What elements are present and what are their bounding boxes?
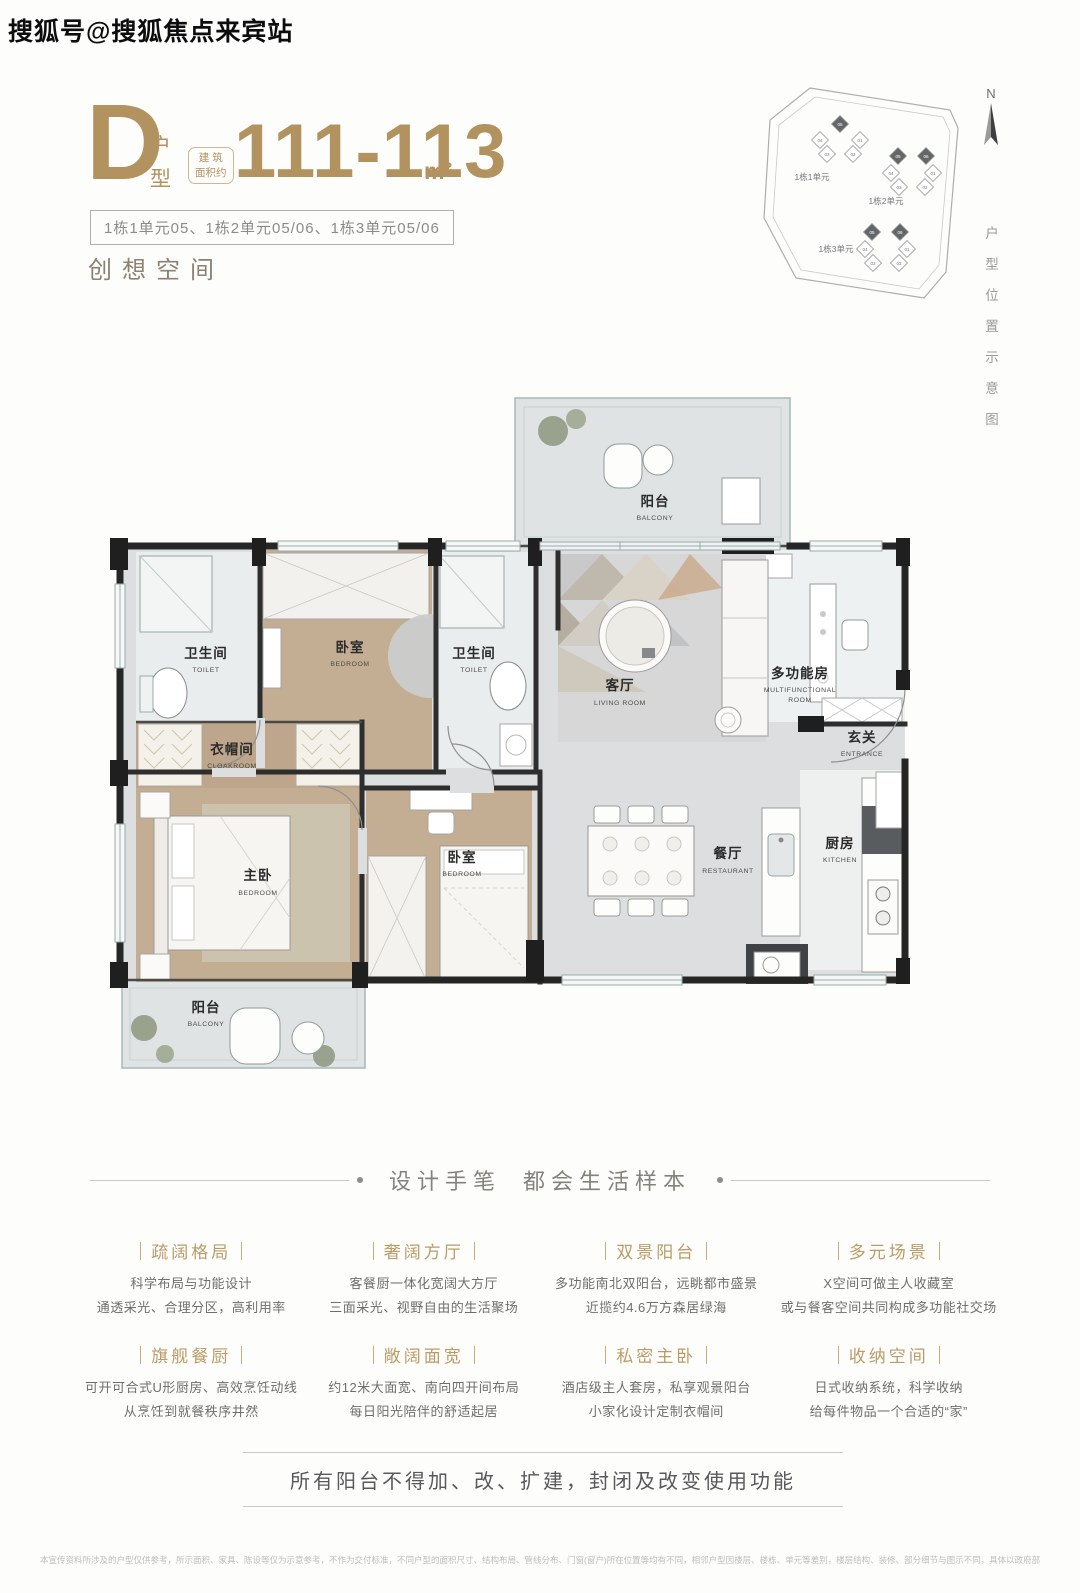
feature-line: 科学布局与功能设计	[75, 1272, 308, 1296]
title-bar	[838, 1346, 839, 1364]
watermark: 搜狐号@搜狐焦点来宾站	[8, 12, 293, 48]
feature-grid: 疏阔格局 科学布局与功能设计 通透采光、合理分区，高利用率 奢阔方厅 客餐厨一体…	[75, 1238, 1005, 1424]
siteplan-unit-number: 01	[930, 171, 936, 176]
floorplan: 阳台 BALCONY 卫生间 TOILET 卧室 BEDROOM 卫生间 TOI…	[110, 388, 910, 1085]
title-bar	[706, 1242, 707, 1260]
siteplan-caption-char: 置	[983, 315, 1001, 335]
feature-title: 旗舰餐厨	[151, 1342, 231, 1367]
room-label-en: ENTRANCE	[841, 751, 883, 758]
feature-line: 约12米大面宽、南向四开间布局	[308, 1376, 541, 1400]
feature-title: 多元场景	[849, 1238, 929, 1263]
feature-line: 酒店级主人套房，私享观景阳台	[540, 1376, 773, 1400]
feature-line: 三面采光、视野自由的生活聚场	[308, 1296, 541, 1320]
feature-line: 日式收纳系统，科学收纳	[773, 1376, 1006, 1400]
basin-round	[643, 445, 673, 475]
siteplan-unit-number: 02	[922, 185, 928, 190]
siteplan-unit-number: 06	[897, 230, 903, 235]
room-label-balcony-top: 阳台	[641, 493, 670, 509]
plant	[131, 1015, 157, 1041]
units-tag: 1栋1单元05、1栋2单元05/06、1栋3单元05/06	[90, 210, 454, 245]
siteplan-caption-char: 示	[983, 346, 1001, 366]
room-label-en: KITCHEN	[823, 857, 857, 864]
divider-line	[90, 1180, 349, 1181]
feature-title: 私密主卧	[616, 1342, 696, 1367]
room-label-en: CLOAKROOM	[207, 763, 257, 770]
siteplan-unit-number: 06	[923, 154, 929, 159]
feature-title: 敞阔面宽	[384, 1342, 464, 1367]
title-bar	[939, 1242, 940, 1260]
room-balcony-top	[515, 398, 790, 546]
title-bar	[140, 1346, 141, 1364]
feature-title: 双景阳台	[616, 1238, 696, 1263]
title-bar	[474, 1242, 475, 1260]
plant	[538, 416, 568, 446]
feature-master: 私密主卧 酒店级主人套房，私享观景阳台 小家化设计定制衣帽间	[540, 1342, 773, 1424]
title-bar	[241, 1242, 242, 1260]
unit-type-char: 户	[150, 130, 173, 163]
title-bar	[241, 1346, 242, 1364]
room-dining	[588, 806, 694, 916]
title-bar	[373, 1242, 374, 1260]
feature-title: 奢阔方厅	[384, 1238, 464, 1263]
room-bedroom-bottom	[366, 788, 532, 982]
shoe-cabinet	[876, 772, 902, 828]
balcony-notice: 所有阳台不得加、改、扩建，封闭及改变使用功能	[243, 1452, 843, 1507]
disclaimer: 本宣传资料所涉及的户型仅供参考，所示面积、家具、陈设等仅为示意参考，不作为交付标…	[40, 1554, 1040, 1566]
room-label-bedroom-bottom: 卧室	[448, 849, 477, 865]
basin	[230, 1008, 280, 1064]
siteplan-unit-number: 01	[857, 138, 863, 143]
room-label-toilet-right: 卫生间	[452, 645, 496, 661]
room-label-en: ROOM	[788, 697, 812, 704]
room-label-en: TOILET	[460, 667, 487, 674]
siteplan-caption-char: 图	[983, 408, 1001, 428]
feature-line: 每日阳光陪伴的舒适起居	[308, 1400, 541, 1424]
siteplan-unit-number: 03	[870, 261, 876, 266]
divider-dot	[357, 1177, 363, 1183]
feature-line: 客餐厨一体化宽阔大方厅	[308, 1272, 541, 1296]
title-bar	[706, 1346, 707, 1364]
siteplan-unit-number: 04	[817, 138, 823, 143]
siteplan-unit-number: 04	[862, 247, 868, 252]
room-label-en: MULTIFUNCTIONAL	[764, 687, 836, 694]
compass: N	[976, 86, 1006, 150]
room-master-bedroom	[136, 788, 362, 982]
siteplan-unit-number: 03	[824, 152, 830, 157]
feature-hall: 奢阔方厅 客餐厨一体化宽阔大方厅 三面采光、视野自由的生活聚场	[308, 1238, 541, 1320]
siteplan-unit-number: 05	[895, 154, 901, 159]
feature-line: 可开可合式U形厨房、高效烹饪动线	[75, 1376, 308, 1400]
basin	[604, 444, 642, 488]
room-label-en: RESTAURANT	[702, 868, 754, 875]
siteplan-caption-char: 意	[983, 377, 1001, 397]
section-title-row: 设计手笔都会生活样本	[90, 1164, 990, 1196]
feature-line: 多功能南北双阳台，远眺都市盛景	[540, 1272, 773, 1296]
siteplan-unit-number: 04	[888, 171, 894, 176]
compass-north-label: N	[976, 86, 1006, 101]
siteplan-diagram: 05040103021栋1单元0506040103021栋2单元05060401…	[752, 76, 964, 311]
title-bar	[939, 1346, 940, 1364]
title-bar	[373, 1346, 374, 1364]
feature-line: 近揽约4.6万方森居绿海	[540, 1296, 773, 1320]
title-bar	[605, 1346, 606, 1364]
feature-title: 疏阔格局	[151, 1238, 231, 1263]
section-title: 设计手笔都会生活样本	[389, 1164, 691, 1196]
room-label-en: BALCONY	[637, 515, 674, 522]
feature-line: 或与餐客空间共同构成多功能社交场	[773, 1296, 1006, 1320]
feature-balcony: 双景阳台 多功能南北双阳台，远眺都市盛景 近揽约4.6万方森居绿海	[540, 1238, 773, 1320]
room-living	[558, 554, 768, 742]
room-label-en: LIVING ROOM	[594, 700, 646, 707]
area-note-line: 面积约	[195, 166, 227, 181]
title-bar	[605, 1242, 606, 1260]
feature-line: 通透采光、合理分区，高利用率	[75, 1296, 308, 1320]
divider-line	[731, 1180, 990, 1181]
siteplan-caption-char: 位	[983, 284, 1001, 304]
room-label-living: 客厅	[605, 677, 635, 693]
area-unit: m²	[424, 158, 452, 185]
siteplan-caption-vertical: 户型位置示意图	[983, 222, 1001, 439]
room-label-dining: 餐厅	[713, 845, 743, 861]
siteplan-clusters: 05040103021栋1单元0506040103021栋2单元05060401…	[795, 116, 942, 272]
room-label-en: TOILET	[192, 667, 219, 674]
section-title-part1: 设计手笔	[389, 1169, 501, 1194]
flyer-page: 搜狐号@搜狐焦点来宾站 D 户 型 建 筑 面积约 111-113 m² 1栋1…	[0, 0, 1080, 1593]
feature-line: 从烹饪到就餐秩序井然	[75, 1400, 308, 1424]
feature-scene: 多元场景 X空间可做主人收藏室 或与餐客空间共同构成多功能社交场	[773, 1238, 1006, 1320]
feature-kitchen: 旗舰餐厨 可开可合式U形厨房、高效烹饪动线 从烹饪到就餐秩序井然	[75, 1342, 308, 1424]
area-note: 建 筑 面积约	[188, 147, 234, 184]
compass-arrow-icon	[982, 101, 1000, 147]
feature-title: 收纳空间	[849, 1342, 929, 1367]
feature-width: 敞阔面宽 约12米大面宽、南向四开间布局 每日阳光陪伴的舒适起居	[308, 1342, 541, 1424]
room-label-entrance: 玄关	[848, 729, 877, 745]
room-label-kitchen: 厨房	[826, 835, 855, 851]
siteplan-caption-char: 户	[983, 222, 1001, 242]
siteplan-cluster-label: 1栋2单元	[869, 196, 904, 206]
siteplan-unit-number: 01	[904, 247, 910, 252]
ac-unit	[722, 478, 760, 524]
feature-layout: 疏阔格局 科学布局与功能设计 通透采光、合理分区，高利用率	[75, 1238, 308, 1320]
room-label-en: BEDROOM	[442, 871, 481, 878]
unit-type-char: 型	[150, 163, 173, 196]
divider-dot	[717, 1177, 723, 1183]
feature-line: 小家化设计定制衣帽间	[540, 1400, 773, 1424]
plant	[156, 1045, 174, 1063]
area-note-line: 建 筑	[195, 151, 227, 166]
basin-round	[292, 1022, 324, 1054]
siteplan-unit-number: 05	[837, 122, 843, 127]
slogan: 创想空间	[88, 250, 224, 285]
siteplan-unit-number: 05	[869, 230, 875, 235]
feature-storage: 收纳空间 日式收纳系统，科学收纳 给每件物品一个合适的“家”	[773, 1342, 1006, 1424]
unit-type-label: 户 型	[150, 130, 173, 196]
feature-line: X空间可做主人收藏室	[773, 1272, 1006, 1296]
room-label-balcony-bottom: 阳台	[192, 999, 221, 1015]
siteplan-cluster-label: 1栋3单元	[819, 244, 854, 254]
room-label-cloakroom: 衣帽间	[210, 741, 254, 757]
title-bar	[474, 1346, 475, 1364]
siteplan-caption-char: 型	[983, 253, 1001, 273]
room-label-en: BALCONY	[188, 1021, 225, 1028]
room-label-en: BEDROOM	[330, 661, 369, 668]
title-bar	[140, 1242, 141, 1260]
room-balcony-bottom	[122, 980, 365, 1068]
room-label-en: BEDROOM	[238, 890, 277, 897]
siteplan-boundary-outer	[764, 88, 958, 298]
feature-line: 给每件物品一个合适的“家”	[773, 1400, 1006, 1424]
siteplan-unit-number: 02	[850, 152, 856, 157]
area-value: 111-113	[234, 114, 507, 190]
siteplan-unit-number: 02	[896, 261, 902, 266]
siteplan-cluster-label: 1栋1单元	[795, 172, 830, 182]
siteplan-unit-number: 03	[896, 185, 902, 190]
room-label-bedroom-top: 卧室	[336, 639, 365, 655]
room-label-toilet-left: 卫生间	[184, 645, 228, 661]
room-label-master-bedroom: 主卧	[244, 867, 273, 883]
title-bar	[838, 1242, 839, 1260]
room-label-multifunction: 多功能房	[771, 665, 829, 681]
room-toilet-right	[436, 552, 536, 770]
section-title-part2: 都会生活样本	[523, 1169, 691, 1194]
plant	[566, 409, 586, 429]
